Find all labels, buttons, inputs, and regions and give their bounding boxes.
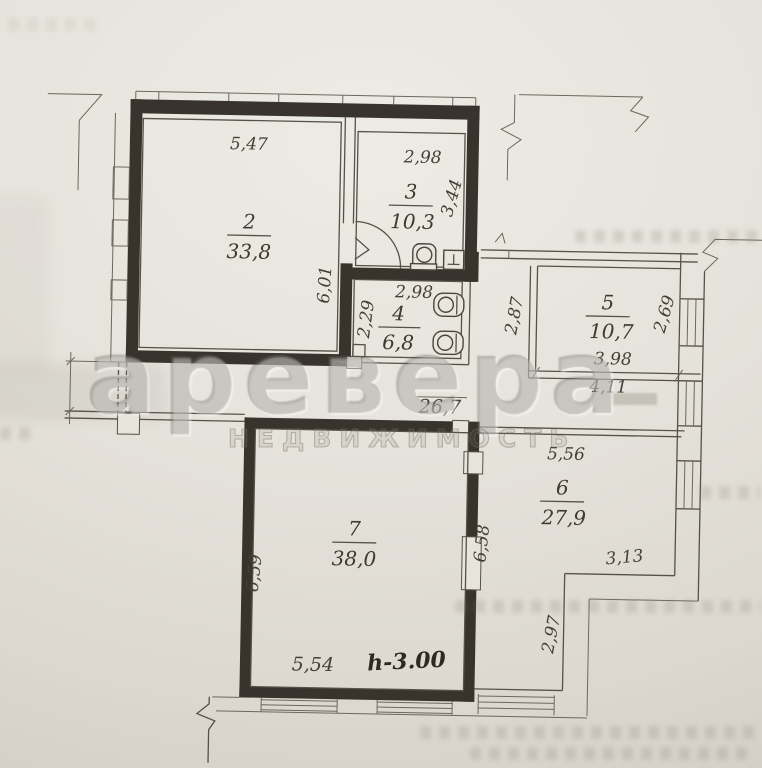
dim-room2-top: 5,47 — [230, 134, 268, 155]
window-hatch — [679, 299, 704, 346]
watermark-subtitle: НЕДВИЖИМОСТЬ — [228, 424, 576, 453]
room-3-number: 3 — [404, 179, 417, 203]
bleed-through-text — [700, 486, 760, 499]
room-5-number: 5 — [601, 290, 614, 314]
dim-room7-bottom: 5,54 — [292, 653, 335, 676]
bleed-through-text — [470, 747, 748, 760]
bleed-through-text — [455, 600, 761, 613]
water-heater-icon — [444, 250, 464, 269]
window-sill-hatch — [478, 694, 554, 715]
dim-room5-right: 2,69 — [650, 293, 680, 336]
revision-tick — [495, 233, 505, 243]
dim-room3-right: 3,44 — [437, 177, 467, 219]
bleed-through-text — [420, 726, 760, 739]
toilet-icon — [411, 244, 437, 270]
window-sill-hatch — [377, 700, 452, 715]
dim-room2-right: 6,01 — [314, 265, 337, 304]
ceiling-height-note: h-3.00 — [367, 647, 448, 677]
dim-room6-lower: 2,97 — [538, 614, 565, 656]
break-line-top-right — [703, 239, 762, 272]
wall-opening — [464, 452, 483, 474]
break-line-top-left — [46, 94, 102, 191]
dim-room6-step: 3,13 — [605, 546, 644, 569]
dim-room6-left: 6,58 — [470, 523, 494, 563]
bleed-through-text — [0, 427, 36, 440]
window-hatch — [676, 461, 701, 509]
break-lines-upper-middle — [500, 94, 649, 183]
dim-room4-top: 2,98 — [394, 282, 433, 303]
dim-extension-line — [69, 352, 70, 424]
room-7-area: 38,0 — [331, 546, 376, 571]
room-2-area: 33,8 — [226, 239, 271, 264]
dim-room7-left: 6,59 — [243, 553, 267, 593]
bleed-through-text — [575, 230, 761, 243]
room-6-number: 6 — [556, 475, 569, 499]
right-exterior-wall — [674, 239, 762, 603]
room-7-number: 7 — [348, 516, 361, 540]
window-sill-hatch — [261, 698, 337, 713]
sink-icon — [434, 293, 464, 317]
watermark-brand: аревера — [86, 318, 626, 438]
room-3-area: 10,3 — [390, 209, 435, 234]
room-2-number: 2 — [242, 209, 256, 233]
partition-walls-room6 — [474, 427, 701, 718]
window-hatch — [678, 381, 703, 426]
dim-room3-top: 2,98 — [403, 147, 442, 168]
break-line-bottom-left — [196, 697, 215, 763]
watermark-dash — [613, 393, 657, 405]
door-leaf-mark — [355, 237, 369, 259]
scanned-floor-plan-photo: 2 33,8 3 10,3 4 6,8 5 10,7 6 27,9 7 38,0 — [0, 0, 762, 768]
room-6-area: 27,9 — [540, 505, 586, 530]
bleed-through-text — [8, 18, 98, 31]
